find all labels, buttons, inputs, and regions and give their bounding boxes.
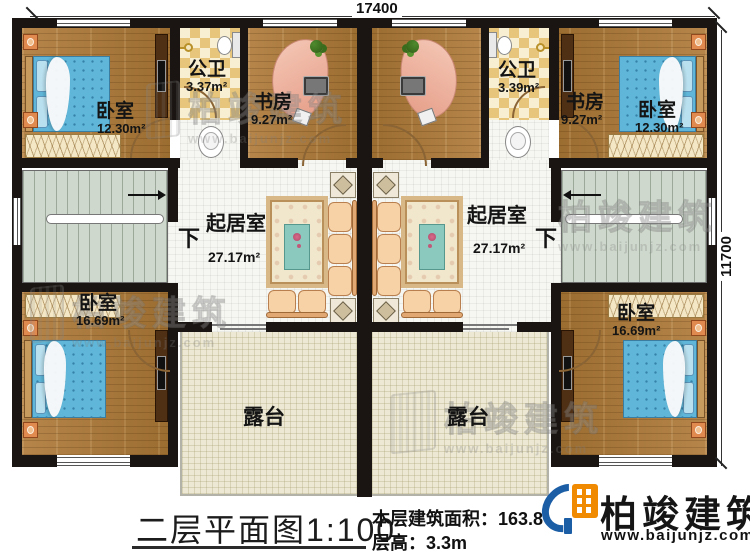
logo-building-small [564, 518, 572, 534]
plan-title-text: 二层平面图 [136, 512, 306, 548]
dimension-width: 17400 [352, 0, 402, 17]
dimension-tick [708, 7, 721, 20]
title-underline [132, 546, 366, 549]
floor-plan-image: 柏竣建筑 www.baijunjz.com 柏竣建筑 www.baijunjz.… [0, 0, 750, 559]
logo-building-windows [577, 489, 582, 495]
footer: 二层平面图1:100 本层建筑面积：163.8 层高：3.3m 柏竣建筑 www… [0, 497, 750, 559]
dimension-layer: 17400 11700 [0, 0, 750, 559]
dimension-tick [26, 7, 39, 20]
logo-building [572, 484, 598, 518]
company-logo-icon [544, 476, 602, 540]
plan-title: 二层平面图1:100 [136, 505, 396, 551]
company-url: www.baijunjz.com [601, 527, 750, 544]
floor-area-text: 本层建筑面积：163.8 [372, 505, 543, 531]
dimension-height: 11700 [718, 232, 735, 281]
floor-height-text: 层高：3.3m [372, 529, 467, 555]
